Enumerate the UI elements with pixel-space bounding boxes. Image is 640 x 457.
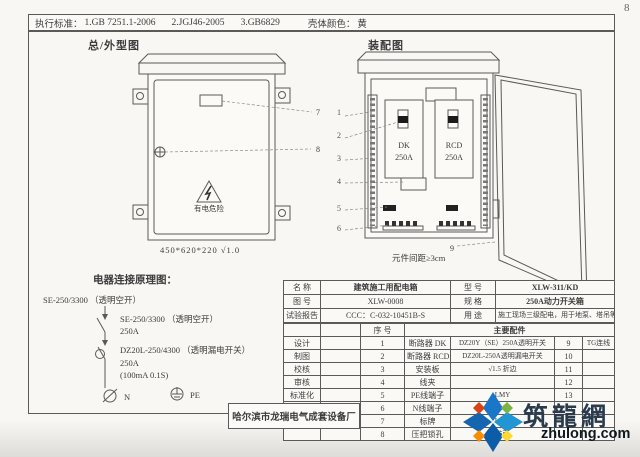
component-spacing-note: 元件间距≥3cm — [392, 252, 445, 264]
cable-slot-left — [383, 205, 396, 211]
earth-terminal-symbol — [171, 387, 183, 400]
cabinet-roof-fascia — [358, 60, 499, 73]
callout-3: 3 — [337, 154, 341, 163]
note-cell: TG连线 — [583, 337, 615, 350]
seq2-cell: 11 — [555, 363, 583, 376]
danger-label: 有电危险 — [194, 203, 224, 213]
spec-label: 规 格 — [451, 295, 496, 309]
door-lock — [155, 147, 165, 157]
zhulong-logo-icon — [462, 391, 524, 453]
seq-label: 序 号 — [361, 324, 405, 337]
cabinet-roof-fascia — [139, 63, 285, 74]
breaker-rcd-name: RCD — [446, 141, 463, 150]
breaker-rcd: RCD 250A — [435, 100, 473, 178]
callout-4: 4 — [337, 177, 341, 186]
page-number: 8 — [624, 2, 630, 14]
callout-9: 9 — [450, 244, 454, 253]
seq-cell: 5 — [361, 389, 405, 402]
seq-cell: 8 — [361, 428, 405, 441]
standard-1: 1.GB 7251.1-2006 — [85, 18, 156, 28]
seq-cell: 1 — [361, 337, 405, 350]
report-value: CCC：C-032-10451B-S — [321, 309, 451, 323]
drawing-sheet: 8 执行标准： 1.GB 7251.1-2006 2.JGJ46-2005 3.… — [0, 0, 640, 457]
standard-2: 2.JGJ46-2005 — [172, 18, 225, 28]
spec-cell — [451, 376, 555, 389]
signature-cell — [321, 376, 361, 389]
name-label: 名 称 — [284, 281, 321, 295]
callout-2: 2 — [337, 131, 341, 140]
schematic-diagram: SE-250/3300 （透明空开） SE-250/3300 （透明空开） 25… — [40, 288, 290, 418]
model-label: 型 号 — [451, 281, 496, 295]
drawing-no-label: 图 号 — [284, 295, 321, 309]
signature-cell — [321, 363, 361, 376]
neutral-terminal-symbol — [103, 389, 117, 402]
seq-cell: 3 — [361, 363, 405, 376]
callout-1: 1 — [337, 108, 341, 117]
model-value: XLW-311/KD — [496, 281, 615, 295]
breaker-dk-rating: 250A — [395, 153, 413, 162]
callout-6: 6 — [337, 224, 341, 233]
seq2-cell: 10 — [555, 350, 583, 363]
breaker-dk: DK 250A — [385, 100, 423, 178]
outline-dimensions: 450*620*220 √1.0 — [160, 245, 240, 255]
note-cell — [583, 350, 615, 363]
spec-value: 250A动力开关箱 — [496, 295, 615, 309]
n-label: N — [124, 392, 130, 402]
breaker2-rating: 250A — [120, 358, 140, 368]
drawing-no-value: XLW-0008 — [321, 295, 451, 309]
feeder-line — [96, 306, 109, 388]
table-row: 审核 4 线夹 12 — [284, 376, 615, 389]
part-cell: 安装板 — [405, 363, 451, 376]
seq2-cell: 9 — [555, 337, 583, 350]
signature-cell — [321, 350, 361, 363]
spec-cell: √1.5 折边 — [451, 363, 555, 376]
spec-cell: DZ20L-250A透明漏电开关 — [451, 350, 555, 363]
callout-5: 5 — [337, 204, 341, 213]
standard-3: 3.GB6829 — [241, 18, 280, 28]
seq-cell: 7 — [361, 415, 405, 428]
breaker1-rating: 250A — [120, 326, 140, 336]
assembly-drawing: DK 250A RCD 250A — [345, 50, 615, 310]
part-cell: 断路器 DK — [405, 337, 451, 350]
open-door — [493, 75, 587, 298]
breaker1-model: SE-250/3300 （透明空开） — [120, 314, 218, 324]
role-cell: 校核 — [284, 363, 321, 376]
cable-slot-right — [446, 205, 458, 211]
callout-7: 7 — [316, 108, 320, 117]
breaker2-param: (100mA 0.1S) — [120, 370, 168, 380]
note-cell — [583, 376, 615, 389]
role-cell — [284, 428, 321, 441]
use-value: 施工现场三级配电，用于地泵、塔吊等 — [496, 309, 615, 323]
breaker-dk-name: DK — [398, 141, 410, 150]
name-value: 建筑施工用配电箱 — [321, 281, 451, 295]
signature-cell — [321, 428, 361, 441]
spec-cell: DZ20Y（SE）250A透明开关 — [451, 337, 555, 350]
role-cell: 制图 — [284, 350, 321, 363]
seq-cell: 2 — [361, 350, 405, 363]
seq-cell: 4 — [361, 376, 405, 389]
parts-list-header-row: 序 号 主要配件 — [284, 324, 615, 337]
part-cell: PE线端子 — [405, 389, 451, 402]
watermark-domain: zhulong.com — [541, 426, 630, 442]
use-label: 用 途 — [451, 309, 496, 323]
part-cell: 断路器 RCD — [405, 350, 451, 363]
cabinet-roof-top — [358, 52, 499, 60]
parts-label: 主要配件 — [405, 324, 615, 337]
incoming-line-label: SE-250/3300 （透明空开） — [43, 295, 141, 305]
callout-8: 8 — [316, 145, 320, 154]
table-row: 设计 1 断路器 DK DZ20Y（SE）250A透明开关 9 TG连线 — [284, 337, 615, 350]
manufacturer-name: 哈尔滨市龙瑞电气成套设备厂 — [232, 409, 356, 423]
part-cell: 线夹 — [405, 376, 451, 389]
cabinet-body — [148, 74, 275, 240]
title-block-header: 名 称 建筑施工用配电箱 型 号 XLW-311/KD 图 号 XLW-0008… — [283, 280, 615, 323]
manufacturer-box: 哈尔滨市龙瑞电气成套设备厂 — [228, 403, 360, 429]
note-cell — [583, 363, 615, 376]
signature-cell — [321, 389, 361, 402]
role-cell: 审核 — [284, 376, 321, 389]
signature-cell — [321, 337, 361, 350]
standards-label: 执行标准： — [35, 16, 83, 30]
part-cell: 压把锁孔 — [405, 428, 451, 441]
outline-drawing: 有电危险 7 8 450*620*220 √1.0 — [115, 48, 335, 263]
shell-color-label: 壳体颜色： — [308, 16, 356, 30]
shell-color-value: 黄 — [357, 16, 367, 30]
breaker2-model: DZ20L-250/4300 （透明漏电开关） — [120, 345, 250, 355]
pe-label: PE — [190, 390, 200, 400]
report-label: 试验报告 — [284, 309, 321, 323]
table-row: 制图 2 断路器 RCD DZ20L-250A透明漏电开关 10 — [284, 350, 615, 363]
breaker-rcd-rating: 250A — [445, 153, 463, 162]
cabinet-body — [365, 73, 493, 238]
schematic-title: 电器连接原理图： — [93, 272, 177, 287]
part-cell: N线端子 — [405, 402, 451, 415]
part-cell: 标牌 — [405, 415, 451, 428]
cabinet-roof-top — [139, 54, 285, 63]
role-cell: 设计 — [284, 337, 321, 350]
seq-cell: 6 — [361, 402, 405, 415]
seq2-cell: 12 — [555, 376, 583, 389]
table-row: 校核 3 安装板 √1.5 折边 11 — [284, 363, 615, 376]
role-cell: 标准化 — [284, 389, 321, 402]
